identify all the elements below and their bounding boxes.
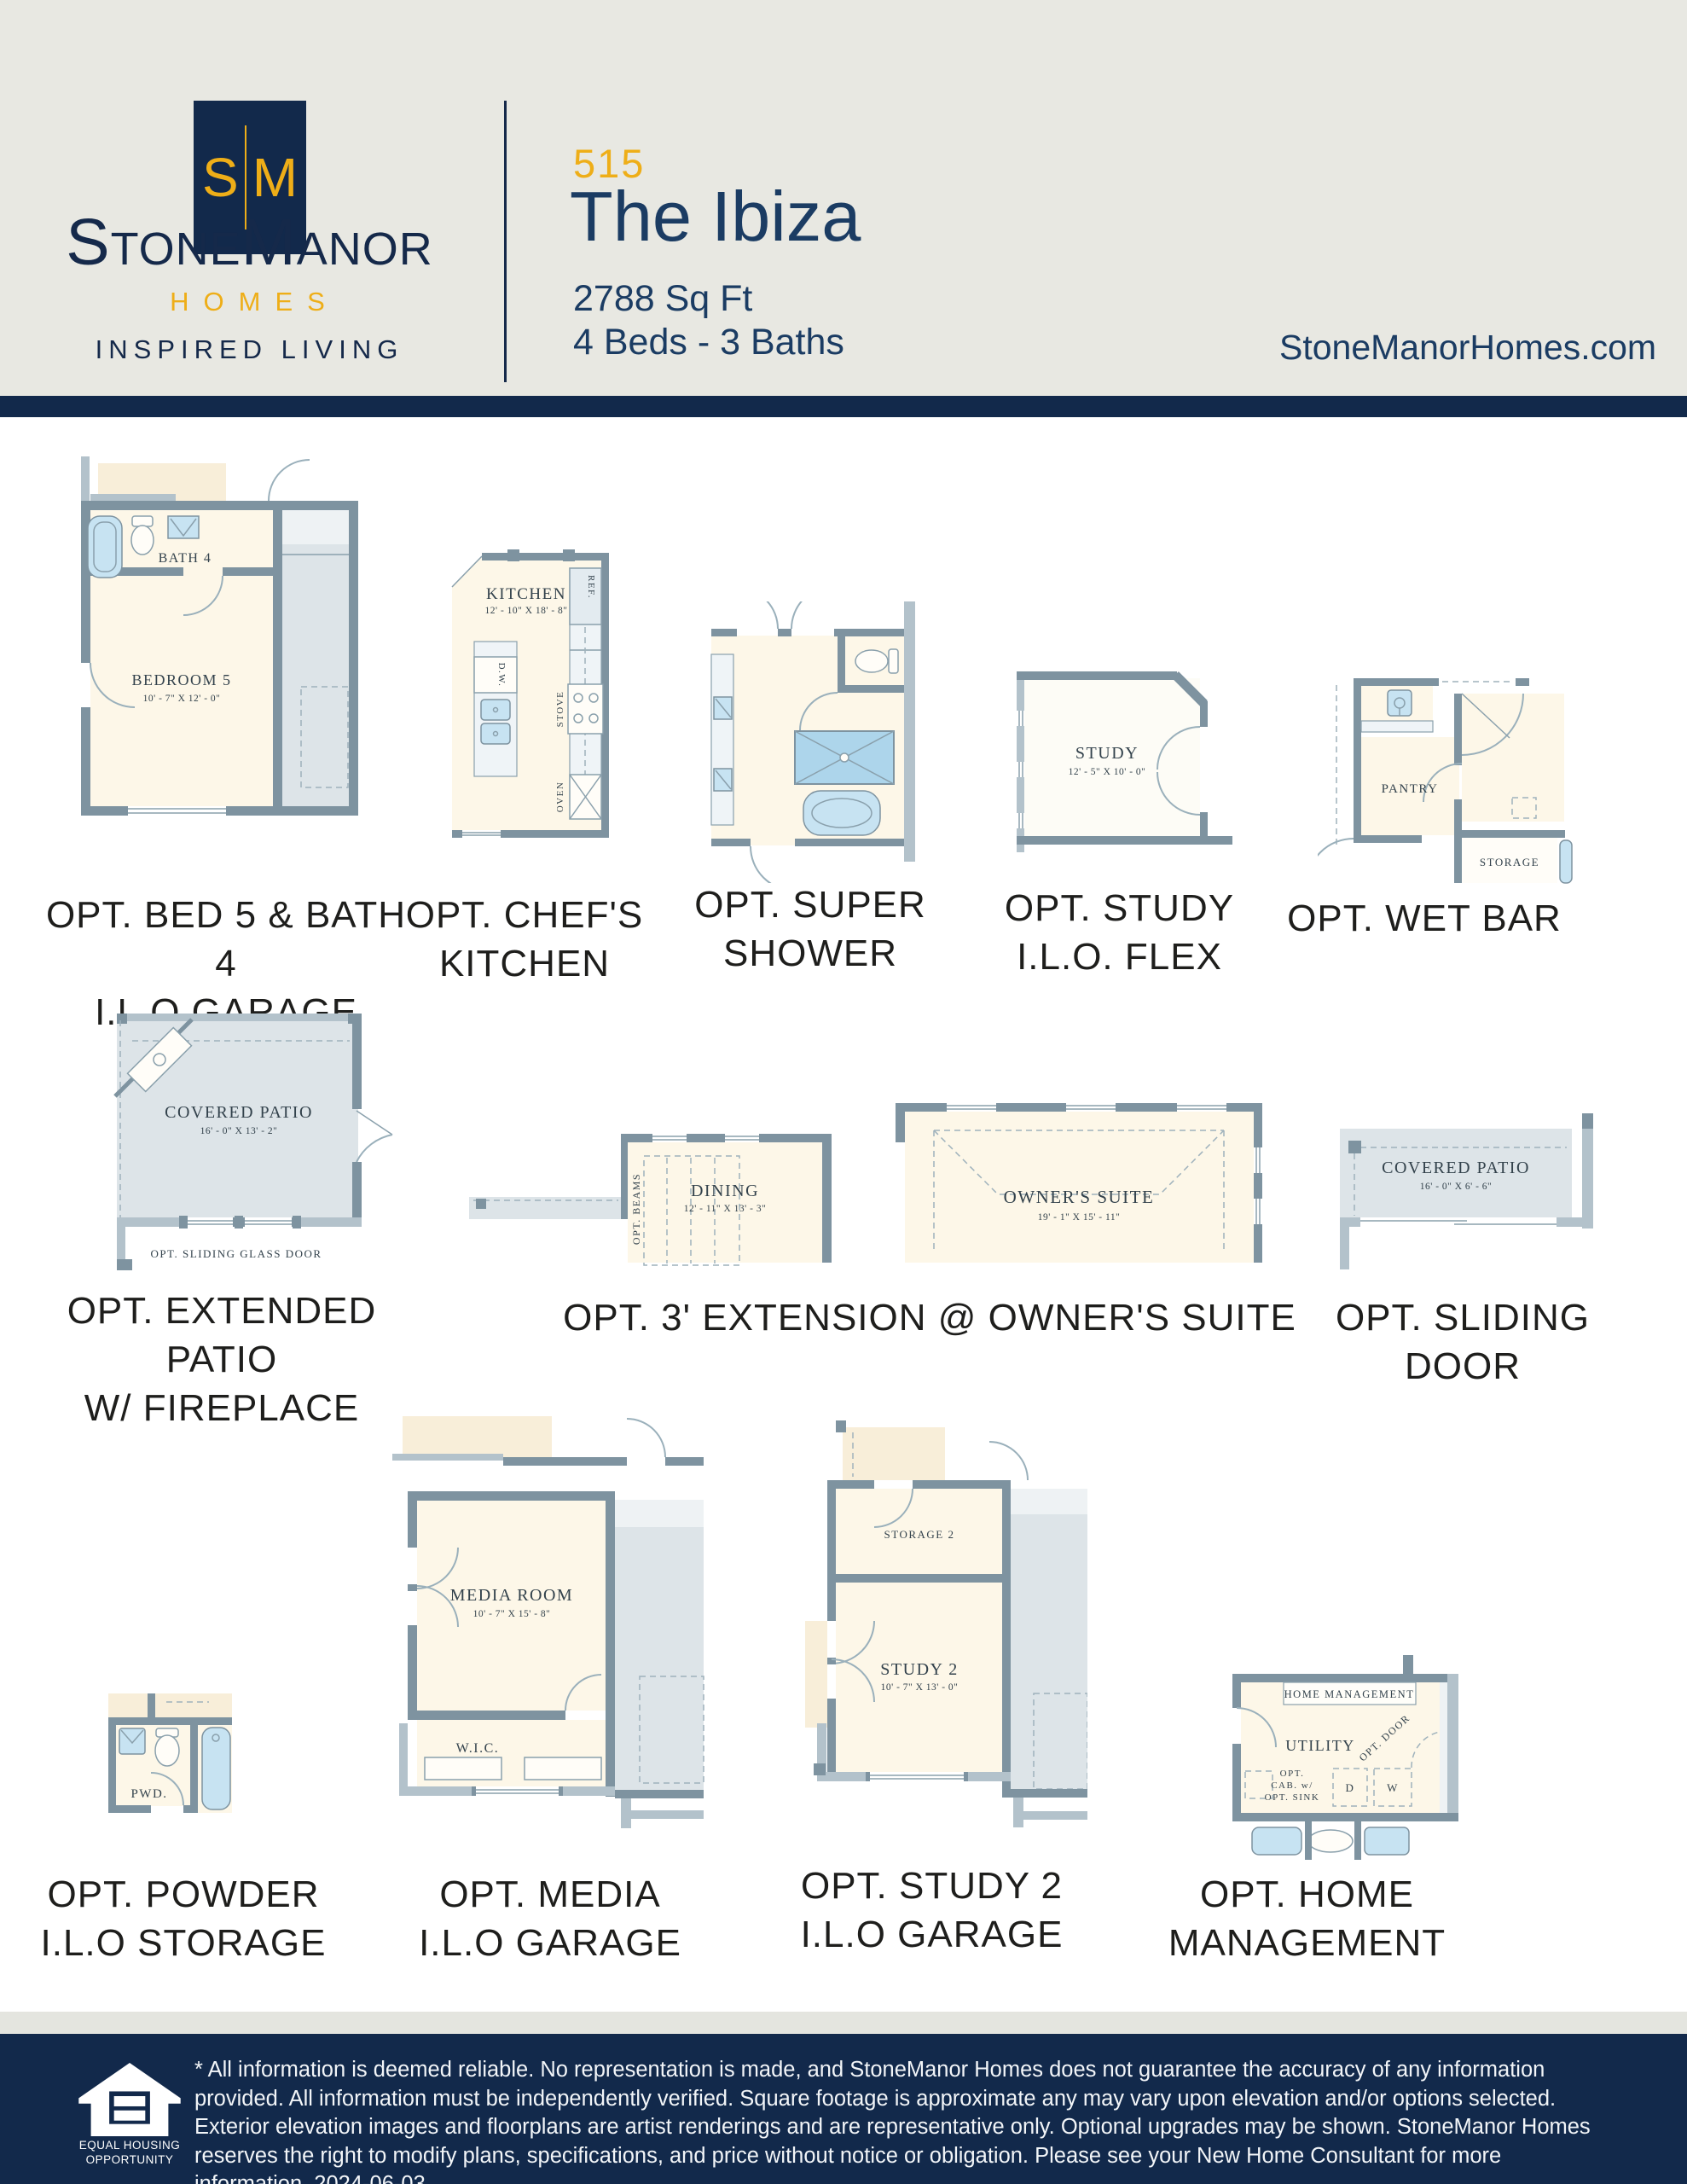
label-oven: OVEN: [555, 781, 565, 813]
floorplan-sliding-door: COVERED PATIO 16' - 0" X 6' - 6": [1326, 1113, 1616, 1275]
website-link: StoneManorHomes.com: [1279, 328, 1656, 368]
label-washer: W: [1387, 1781, 1399, 1794]
label-home-management: HOME MANAGEMENT: [1284, 1688, 1415, 1700]
room-label-patio2: COVERED PATIO: [1382, 1159, 1530, 1177]
label-stove: STOVE: [555, 691, 565, 728]
caption-media: OPT. MEDIA I.L.O GARAGE: [405, 1870, 695, 1967]
room-dim-patio2: 16' - 0" X 6' - 6": [1420, 1182, 1493, 1192]
room-label-study2: STUDY 2: [880, 1660, 958, 1679]
caption-study: OPT. STUDY I.L.O. FLEX: [994, 884, 1245, 981]
floorplan-powder: PWD.: [98, 1693, 243, 1830]
room-label-pantry: PANTRY: [1382, 782, 1439, 796]
floorplan-media: MEDIA ROOM 10' - 7" X 15' - 8" W.I.C.: [384, 1416, 721, 1834]
room-dim-bedroom5: 10' - 7" X 12' - 0": [143, 694, 221, 704]
floorplan-bed5-bath4: BATH 4 BEDROOM 5 10' - 7" X 12' - 0": [55, 456, 362, 857]
floorplan-study: STUDY 12' - 5" X 10' - 0": [1006, 661, 1232, 883]
brand-name: StoneManor: [34, 205, 465, 281]
flyer-page: S M StoneManor HOMES INSPIRED LIVING 515…: [0, 0, 1687, 2184]
floorplan-chefs-kitchen: KITCHEN 12' - 10" X 18' - 8" REF. D.W. S…: [443, 546, 631, 849]
room-label-utility: UTILITY: [1285, 1737, 1354, 1754]
floorplan-home-management: HOME MANAGEMENT UTILITY OPT. DOOR OPT. C…: [1220, 1655, 1484, 1860]
caption-sliding: OPT. SLIDING DOOR: [1296, 1293, 1629, 1391]
label-dryer: D: [1346, 1781, 1355, 1794]
floorplan-super-shower: [699, 601, 934, 883]
header-rule: [0, 396, 1687, 417]
room-label-bedroom5: BEDROOM 5: [131, 671, 231, 688]
caption-study2: OPT. STUDY 2 I.L.O GARAGE: [785, 1862, 1079, 1959]
room-label-storage: STORAGE: [1480, 856, 1539, 868]
caption-powder: OPT. POWDER I.L.O STORAGE: [38, 1870, 328, 1967]
floorplan-owners-suite-extension: DINING 12' - 11" X 13' - 3" OPT. BEAMS O…: [469, 1096, 1275, 1271]
room-dim-dining: 12' - 11" X 13' - 3": [684, 1204, 767, 1214]
caption-wetbar: OPT. WET BAR: [1262, 894, 1586, 943]
room-dim-covered-patio: 16' - 0" X 13' - 2": [200, 1126, 278, 1136]
room-label-kitchen: KITCHEN: [486, 585, 566, 603]
room-dim-study: 12' - 5" X 10' - 0": [1069, 767, 1146, 777]
label-opt-cab-2: CAB. w/: [1271, 1780, 1313, 1791]
label-opt-cab-3: OPT. SINK: [1265, 1792, 1320, 1803]
header: S M StoneManor HOMES INSPIRED LIVING 515…: [0, 0, 1687, 396]
caption-shower: OPT. SUPER SHOWER: [678, 880, 942, 978]
floorplan-study2: STORAGE 2 STUDY 2 10' - 7" X 13' - 0": [793, 1420, 1087, 1860]
sqft-value: 2788 Sq Ft: [573, 278, 752, 320]
caption-homemgmt: OPT. HOME MANAGEMENT: [1160, 1870, 1454, 1967]
label-sliding-glass-door: OPT. SLIDING GLASS DOOR: [150, 1247, 322, 1260]
room-dim-kitchen: 12' - 10" X 18' - 8": [485, 606, 568, 616]
room-label-study: STUDY: [1075, 744, 1139, 763]
room-label-bath4: BATH 4: [159, 551, 212, 566]
floorplan-wet-bar: PANTRY STORAGE: [1318, 670, 1599, 892]
room-label-pwd: PWD.: [130, 1787, 167, 1801]
room-label-media: MEDIA ROOM: [450, 1586, 573, 1605]
label-opt-cab-1: OPT.: [1280, 1769, 1305, 1779]
room-dim-owners-suite: 19' - 1" X 15' - 11": [1038, 1212, 1121, 1223]
label-opt-beams: OPT. BEAMS: [630, 1173, 642, 1245]
caption-kitchen: OPT. CHEF'S KITCHEN: [388, 891, 661, 988]
room-label-dining: DINING: [691, 1182, 759, 1200]
room-label-covered-patio: COVERED PATIO: [165, 1103, 313, 1122]
footer-separator: [0, 2012, 1687, 2034]
caption-patio: OPT. EXTENDED PATIO W/ FIREPLACE: [26, 1287, 418, 1432]
header-divider: [504, 101, 507, 382]
logo-letter-m: M: [252, 146, 298, 209]
floorplan-extended-patio: COVERED PATIO 16' - 0" X 13' - 2" OPT. S…: [98, 1007, 397, 1280]
beds-baths-value: 4 Beds - 3 Baths: [573, 322, 844, 363]
label-dw: D.W.: [496, 663, 507, 688]
room-label-owners-suite: OWNER'S SUITE: [1004, 1187, 1155, 1207]
room-dim-media: 10' - 7" X 15' - 8": [473, 1609, 551, 1619]
disclaimer-text: * All information is deemed reliable. No…: [194, 2056, 1620, 2184]
page-title: The Ibiza: [570, 176, 861, 258]
label-ref: REF.: [586, 575, 596, 599]
equal-housing-icon: [78, 2063, 181, 2140]
room-label-wic: W.I.C.: [456, 1741, 500, 1756]
equal-housing-label: EQUAL HOUSING OPPORTUNITY: [44, 2138, 215, 2167]
room-label-storage2: STORAGE 2: [884, 1528, 955, 1541]
room-dim-study2: 10' - 7" X 13' - 0": [881, 1682, 959, 1693]
brand-tagline: INSPIRED LIVING: [34, 334, 465, 365]
logo-letter-s: S: [202, 146, 239, 209]
caption-extension: OPT. 3' EXTENSION @ OWNER'S SUITE: [512, 1293, 1348, 1342]
brand-sub: HOMES: [34, 287, 465, 317]
